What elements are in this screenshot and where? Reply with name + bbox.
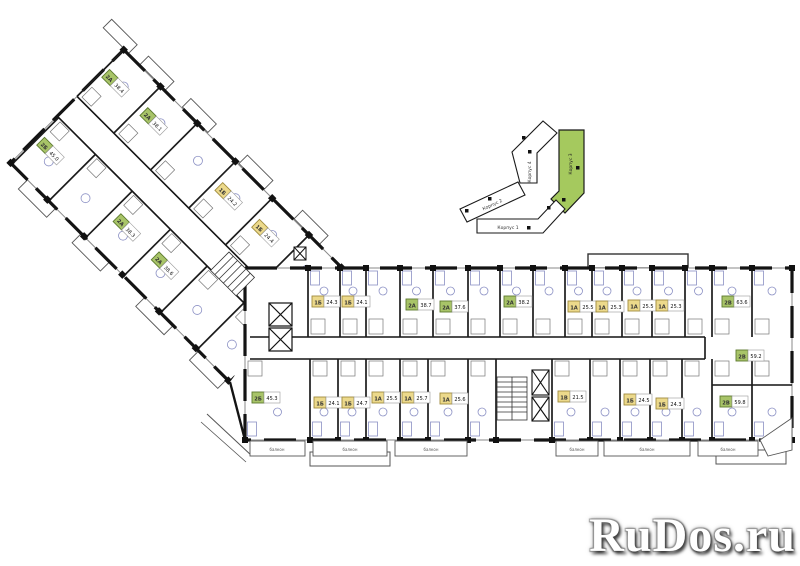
svg-text:25.3: 25.3 [670, 304, 681, 310]
shaft-icon [294, 247, 306, 260]
svg-text:37.6: 37.6 [454, 305, 465, 311]
elevator-icon [532, 370, 549, 421]
svg-text:21.5: 21.5 [572, 395, 583, 401]
svg-text:балкон: балкон [343, 447, 358, 452]
svg-text:балкон: балкон [721, 447, 736, 452]
svg-text:24.3: 24.3 [326, 300, 337, 306]
unit-badge-1Б: 1Б24.3 [312, 296, 340, 307]
unit-badge-2А: 2А37.6 [440, 301, 468, 312]
svg-text:25.5: 25.5 [582, 305, 593, 311]
svg-text:59.2: 59.2 [750, 354, 761, 360]
svg-text:25.6: 25.6 [454, 397, 465, 403]
unit-badge-1А: 1А25.5 [372, 392, 400, 403]
svg-text:24.3: 24.3 [670, 402, 681, 408]
unit-badge-1А: 1А25.5 [628, 300, 656, 311]
svg-text:1А: 1А [598, 305, 606, 311]
svg-text:59.8: 59.8 [734, 400, 745, 406]
svg-text:38.7: 38.7 [420, 303, 431, 309]
unit-badge-2В: 2В59.2 [736, 350, 764, 361]
svg-text:1А: 1А [442, 397, 450, 403]
svg-text:2А: 2А [408, 303, 416, 309]
svg-text:38.2: 38.2 [518, 300, 529, 306]
svg-text:25.5: 25.5 [642, 304, 653, 310]
svg-text:25.5: 25.5 [386, 396, 397, 402]
svg-text:1Б: 1Б [344, 300, 352, 306]
svg-text:2В: 2В [738, 354, 746, 360]
svg-text:балкон: балкон [570, 447, 585, 452]
svg-text:24.1: 24.1 [356, 300, 367, 306]
svg-text:2В: 2В [722, 400, 730, 406]
unit-badge-1Б: 1Б24.7 [342, 397, 370, 408]
unit-badge-2В: 2В63.6 [722, 296, 750, 307]
svg-text:1Б: 1Б [316, 401, 324, 407]
svg-text:2А: 2А [442, 305, 450, 311]
svg-text:1А: 1А [658, 304, 666, 310]
top-balcony-protrusion [588, 254, 688, 268]
svg-text:45.3: 45.3 [266, 396, 277, 402]
unit-badge-1А: 1А25.3 [596, 301, 624, 312]
svg-text:1Б: 1Б [344, 401, 352, 407]
unit-badge-1А: 1А25.5 [568, 301, 596, 312]
unit-badge-2Б: 2Б45.3 [252, 392, 280, 403]
floor-plan-page: 2А38.42А38.11Б24.21Б24.42Б45.02А38.32А38… [0, 0, 800, 566]
svg-text:2В: 2В [724, 300, 732, 306]
unit-badge-1Б: 1Б24.1 [314, 397, 342, 408]
svg-text:балкон: балкон [270, 447, 285, 452]
svg-text:1А: 1А [630, 304, 638, 310]
svg-text:1А: 1А [404, 396, 412, 402]
unit-badge-1Б: 1Б24.1 [342, 296, 370, 307]
stairs-icon [497, 377, 527, 420]
svg-text:24.1: 24.1 [328, 401, 339, 407]
svg-text:1Б: 1Б [658, 402, 666, 408]
svg-text:24.7: 24.7 [356, 401, 367, 407]
unit-badge-2А: 2А38.2 [504, 296, 532, 307]
unit-badge-2А: 2А38.7 [406, 299, 434, 310]
svg-text:24.5: 24.5 [638, 398, 649, 404]
svg-text:2Б: 2Б [254, 396, 262, 402]
junction-balcony-edge [201, 422, 246, 462]
floor-plan-drawing: 2А38.42А38.11Б24.21Б24.42Б45.02А38.32А38… [0, 0, 800, 566]
main-wing: балконбалконбалконбалконбалконбалкон [211, 247, 795, 466]
svg-text:25.7: 25.7 [416, 396, 427, 402]
svg-text:1А: 1А [570, 305, 578, 311]
korpus-1-label: Корпус 1 [497, 225, 518, 231]
svg-text:63.6: 63.6 [736, 300, 747, 306]
svg-text:балкон: балкон [424, 447, 439, 452]
svg-text:25.3: 25.3 [610, 305, 621, 311]
site-map-korpus-4: Корпус 4 [512, 121, 557, 183]
unit-badge-1А: 1А25.6 [440, 393, 468, 404]
svg-text:1В: 1В [560, 395, 568, 401]
svg-text:балкон: балкон [640, 447, 655, 452]
svg-text:1Б: 1Б [314, 300, 322, 306]
korpus-3-label: Корпус 3 [568, 153, 574, 174]
unit-badge-1А: 1А25.7 [402, 392, 430, 403]
svg-text:2А: 2А [506, 300, 514, 306]
unit-badge-2В: 2В59.8 [720, 396, 748, 407]
unit-badge-1В: 1В21.5 [558, 391, 586, 402]
unit-badge-1Б: 1Б24.5 [624, 394, 652, 405]
site-map-korpus-2: Корпус 2 [460, 182, 525, 222]
site-map: Корпус 4 Корпус 3 Корпус 2 Корпус 1 [460, 121, 584, 233]
svg-text:1Б: 1Б [626, 398, 634, 404]
svg-text:1А: 1А [374, 396, 382, 402]
unit-badge-1А: 1А25.3 [656, 300, 684, 311]
unit-badge-1Б: 1Б24.3 [656, 398, 684, 409]
rudos-watermark: RuDos.ru [589, 512, 796, 560]
korpus-4-label: Корпус 4 [527, 161, 533, 182]
